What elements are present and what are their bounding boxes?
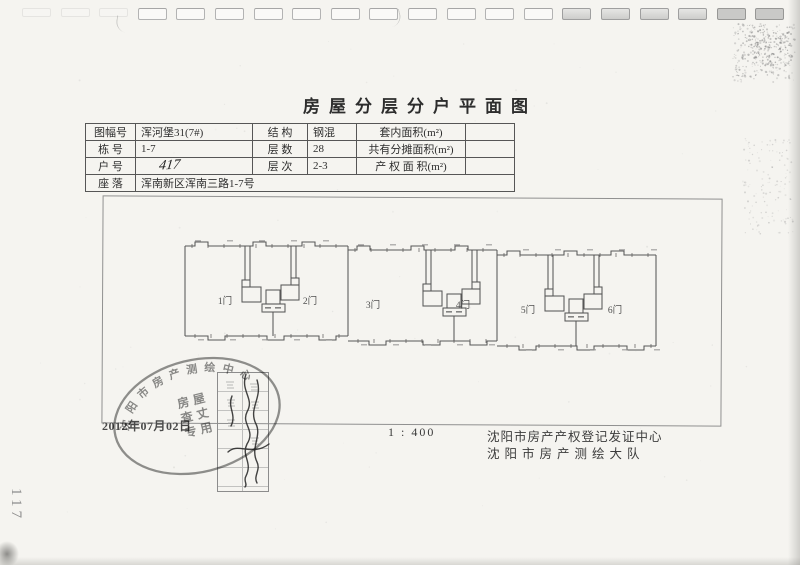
plan-drawing-frame <box>101 195 722 426</box>
binding-hole <box>678 8 707 20</box>
binding-hole <box>331 8 360 20</box>
binding-hole <box>408 8 437 20</box>
binding-hole <box>524 8 553 20</box>
scanned-document-page: 117 房屋分层分户平面图 图幅号 浑河堡31(7#) 结 构 钢混 套内面积(… <box>0 0 800 565</box>
handwritten-unit-number: 417 <box>158 158 181 175</box>
binding-hole <box>485 8 514 20</box>
field-label: 产 权 面 积(m²) <box>357 158 466 175</box>
field-value: 1-7 <box>136 141 253 158</box>
field-label: 座 落 <box>86 175 136 192</box>
field-value: 2-3 <box>308 158 357 175</box>
field-value: 钢混 <box>308 124 357 141</box>
field-label: 套内面积(m²) <box>357 124 466 141</box>
binding-hole <box>61 8 90 17</box>
table-row: 栋 号 1-7 层 数 28 共有分摊面积(m²) <box>86 141 515 158</box>
field-label: 层 次 <box>253 158 308 175</box>
scan-edge-shadow <box>788 0 800 565</box>
scan-noise <box>732 23 795 83</box>
table-row: 图幅号 浑河堡31(7#) 结 构 钢混 套内面积(m²) <box>86 124 515 141</box>
drawing-scale: 1 : 400 <box>388 425 435 440</box>
field-label: 户 号 <box>86 158 136 175</box>
field-label: 层 数 <box>253 141 308 158</box>
table-row: 座 落 浑南新区浑南三路1-7号 <box>86 175 515 192</box>
page-number: 117 <box>7 488 24 522</box>
document-title: 房屋分层分户平面图 <box>110 92 730 117</box>
binding-hole <box>215 8 244 20</box>
info-table: 图幅号 浑河堡31(7#) 结 构 钢混 套内面积(m²) 栋 号 1-7 层 … <box>85 123 515 192</box>
scan-noise <box>743 138 794 235</box>
binding-hole <box>717 8 746 20</box>
field-label: 栋 号 <box>86 141 136 158</box>
field-value: 28 <box>308 141 357 158</box>
field-label: 结 构 <box>253 124 308 141</box>
scan-curl-mark <box>115 15 128 32</box>
signature-box <box>217 372 269 492</box>
scan-smudge <box>0 541 19 565</box>
field-label: 共有分摊面积(m²) <box>357 141 466 158</box>
field-value <box>466 141 515 158</box>
scan-curl-mark <box>388 9 403 27</box>
binding-hole <box>176 8 205 20</box>
binding-hole <box>562 8 591 20</box>
binding-hole <box>755 8 784 20</box>
org-name-line2: 沈阳市房产测绘大队 <box>487 443 645 462</box>
binding-hole <box>447 8 476 20</box>
binding-hole <box>254 8 283 20</box>
field-label: 图幅号 <box>86 124 136 141</box>
binding-hole <box>138 8 167 20</box>
binding-hole <box>292 8 321 20</box>
scan-noise <box>750 29 791 66</box>
field-value-handwritten: 417 <box>136 158 253 175</box>
binding-hole <box>601 8 630 20</box>
scan-edge-shadow <box>0 557 800 565</box>
field-value <box>466 158 515 175</box>
binding-hole <box>22 8 51 17</box>
field-value: 浑河堡31(7#) <box>136 124 253 141</box>
address-value: 浑南新区浑南三路1-7号 <box>136 175 515 192</box>
binding-hole <box>640 8 669 20</box>
field-value <box>466 124 515 141</box>
stamp-date: 2012年07月02日 <box>102 417 192 434</box>
table-row: 户 号 417 层 次 2-3 产 权 面 积(m²) <box>86 158 515 175</box>
